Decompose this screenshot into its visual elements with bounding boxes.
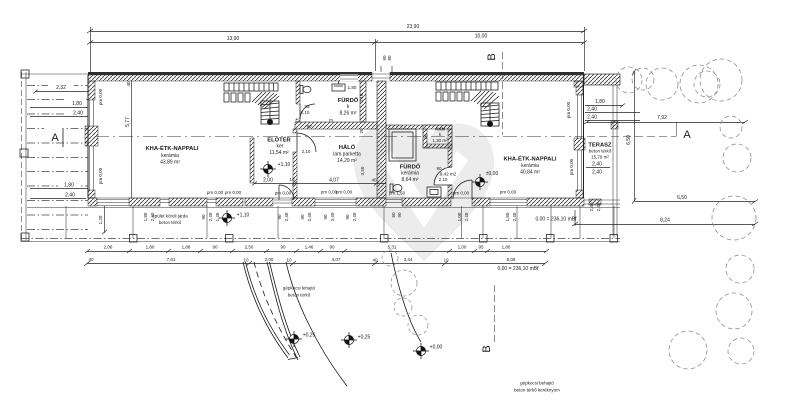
svg-text:7,92: 7,92: [657, 115, 667, 121]
svg-text:40: 40: [372, 258, 378, 263]
svg-text:1,20: 1,20: [98, 215, 103, 224]
svg-text:FÜRDŐ: FÜRDŐ: [400, 164, 421, 171]
svg-text:95: 95: [304, 104, 310, 109]
svg-text:1,80: 1,80: [502, 245, 511, 250]
svg-text:2,40: 2,40: [284, 212, 289, 221]
svg-text:1,40: 1,40: [215, 212, 220, 221]
svg-text:1,80: 1,80: [505, 212, 510, 221]
svg-text:40: 40: [88, 257, 94, 262]
svg-text:90: 90: [201, 214, 206, 220]
svg-text:B: B: [481, 345, 493, 352]
svg-text:2,40: 2,40: [208, 212, 213, 221]
svg-text:1,00: 1,00: [458, 245, 467, 250]
svg-text:6,50: 6,50: [626, 135, 632, 145]
svg-text:2,40: 2,40: [65, 193, 75, 199]
svg-text:6,50: 6,50: [677, 195, 687, 201]
svg-text:pm 0,00: pm 0,00: [225, 190, 242, 195]
svg-text:90: 90: [277, 214, 282, 220]
svg-text:beton térkő: beton térkő: [288, 293, 311, 298]
svg-text:épület körüli járda: épület körüli járda: [152, 214, 188, 219]
svg-text:2,00: 2,00: [263, 178, 273, 184]
svg-text:2,10: 2,10: [439, 177, 448, 182]
svg-text:ELŐTÉR: ELŐTÉR: [267, 136, 291, 144]
svg-text:+0,25: +0,25: [358, 335, 371, 341]
svg-text:2,40: 2,40: [592, 170, 602, 176]
svg-text:beton térkő keréknyom: beton térkő keréknyom: [514, 388, 560, 393]
svg-text:+0,25: +0,25: [303, 333, 316, 339]
svg-text:pm 0,00: pm 0,00: [98, 167, 103, 184]
svg-text:1,80: 1,80: [143, 212, 148, 221]
svg-text:10: 10: [286, 258, 292, 263]
svg-text:pm 0,00: pm 0,00: [500, 190, 517, 195]
svg-text:23,90: 23,90: [407, 24, 420, 30]
svg-text:+1,10: +1,10: [278, 162, 291, 168]
svg-text:10,00: 10,00: [475, 34, 488, 40]
svg-text:+1,10: +1,10: [237, 213, 250, 219]
svg-text:1,80: 1,80: [348, 85, 357, 90]
svg-text:90: 90: [306, 124, 312, 129]
svg-text:A: A: [683, 129, 691, 141]
svg-text:11,54 m²: 11,54 m²: [269, 150, 289, 156]
svg-text:1,80: 1,80: [64, 183, 74, 189]
svg-text:2,40: 2,40: [307, 212, 312, 221]
svg-text:kerámia: kerámia: [521, 163, 539, 169]
svg-text:pm 0,00: pm 0,00: [569, 158, 574, 175]
svg-text:ker: ker: [277, 144, 284, 150]
svg-text:15,79 m²: 15,79 m²: [591, 155, 609, 160]
svg-text:1,80: 1,80: [595, 99, 605, 105]
svg-text:43,89 m²: 43,89 m²: [160, 160, 180, 166]
svg-text:3,50: 3,50: [360, 166, 365, 175]
svg-text:gépkocsi lehajtó: gépkocsi lehajtó: [283, 286, 316, 291]
svg-text:1,88: 1,88: [182, 245, 191, 250]
svg-text:0,00 = 236,10 mBf: 0,00 = 236,10 mBf: [497, 266, 539, 272]
svg-text:±0,00: ±0,00: [486, 171, 499, 177]
svg-text:5,77: 5,77: [125, 117, 131, 127]
svg-text:10: 10: [443, 258, 449, 263]
svg-text:40,84 m²: 40,84 m²: [520, 170, 540, 176]
svg-text:5,31: 5,31: [388, 245, 397, 250]
svg-text:2,40: 2,40: [73, 111, 83, 117]
svg-text:90: 90: [280, 245, 286, 250]
svg-text:2,10: 2,10: [359, 93, 364, 102]
svg-text:kerámia: kerámia: [161, 153, 179, 159]
svg-text:7,61: 7,61: [167, 257, 176, 262]
svg-text:90: 90: [300, 214, 305, 220]
svg-text:+0,00: +0,00: [430, 345, 443, 351]
svg-text:90: 90: [436, 166, 442, 171]
svg-text:2,32: 2,32: [56, 85, 66, 91]
svg-text:8,24: 8,24: [660, 218, 670, 224]
svg-text:13,90: 13,90: [227, 36, 240, 42]
svg-text:kerámia: kerámia: [401, 171, 419, 177]
svg-text:1,00: 1,00: [457, 212, 462, 221]
svg-text:14,29 m²: 14,29 m²: [337, 158, 357, 164]
svg-text:2,40: 2,40: [352, 212, 357, 221]
svg-text:pm 0,00: pm 0,00: [453, 191, 470, 196]
svg-text:HÁLÓ: HÁLÓ: [339, 143, 356, 151]
svg-text:2,10: 2,10: [302, 149, 311, 154]
svg-text:8,64 m²: 8,64 m²: [402, 177, 419, 183]
svg-text:AKN: AKN: [435, 127, 445, 132]
svg-text:pm 0,00: pm 0,00: [275, 191, 292, 196]
svg-text:2,10: 2,10: [301, 110, 310, 115]
svg-text:10: 10: [243, 258, 249, 263]
svg-text:90: 90: [397, 212, 402, 218]
svg-text:gépkocsi behajtó: gépkocsi behajtó: [520, 381, 554, 386]
svg-text:2,00: 2,00: [265, 257, 274, 262]
svg-text:lam.parketta: lam.parketta: [333, 152, 361, 158]
svg-text:9,42 m2: 9,42 m2: [440, 172, 457, 177]
svg-text:60: 60: [391, 212, 396, 218]
svg-text:2,40: 2,40: [464, 212, 469, 221]
svg-text:10: 10: [289, 177, 295, 182]
svg-text:40: 40: [126, 81, 131, 87]
svg-text:40: 40: [371, 178, 377, 183]
svg-text:B: B: [486, 53, 498, 60]
svg-text:1,80: 1,80: [72, 101, 82, 107]
svg-text:FÜRDŐ: FÜRDŐ: [338, 97, 359, 104]
svg-text:2,50: 2,50: [245, 245, 254, 250]
svg-text:2,40: 2,40: [587, 107, 597, 113]
svg-text:pm 0,00: pm 0,00: [207, 190, 224, 195]
svg-text:2,40: 2,40: [330, 212, 335, 221]
svg-text:90: 90: [212, 245, 218, 250]
svg-text:4,07: 4,07: [329, 178, 339, 184]
svg-text:A: A: [51, 132, 59, 144]
svg-text:2,40: 2,40: [587, 115, 597, 121]
svg-text:pm 0,00: pm 0,00: [98, 88, 103, 105]
svg-text:m: m: [329, 118, 333, 123]
svg-text:2,06: 2,06: [104, 245, 113, 250]
svg-text:beton térkő: beton térkő: [589, 149, 612, 154]
svg-text:2,40: 2,40: [592, 162, 602, 168]
svg-text:90: 90: [323, 214, 328, 220]
svg-text:KHA-ÉTK-NAPPALI: KHA-ÉTK-NAPPALI: [145, 144, 198, 152]
svg-text:pm 1,50: pm 1,50: [389, 191, 406, 196]
svg-text:KHA-ÉTK-NAPPALI: KHA-ÉTK-NAPPALI: [503, 155, 556, 163]
svg-text:1,30 m²: 1,30 m²: [432, 138, 448, 143]
svg-text:1,80: 1,80: [146, 245, 155, 250]
svg-text:8,26 m²: 8,26 m²: [340, 111, 357, 117]
svg-text:95: 95: [478, 245, 484, 250]
svg-text:80: 80: [387, 55, 392, 61]
svg-text:90: 90: [329, 245, 335, 250]
svg-text:2,40: 2,40: [150, 212, 155, 221]
svg-text:0,00 = 236,10 mBf: 0,00 = 236,10 mBf: [535, 217, 577, 223]
svg-text:8,06: 8,06: [507, 257, 516, 262]
svg-text:pm 0,00: pm 0,00: [336, 190, 353, 195]
svg-text:beton térkő: beton térkő: [159, 220, 182, 225]
svg-text:4,07: 4,07: [332, 257, 341, 262]
svg-text:3,44: 3,44: [404, 257, 413, 262]
svg-text:90: 90: [345, 214, 350, 220]
svg-text:20: 20: [359, 128, 364, 134]
svg-text:1,46: 1,46: [305, 245, 314, 250]
svg-text:pm 0,00: pm 0,00: [566, 101, 571, 118]
svg-text:2,40: 2,40: [512, 212, 517, 221]
